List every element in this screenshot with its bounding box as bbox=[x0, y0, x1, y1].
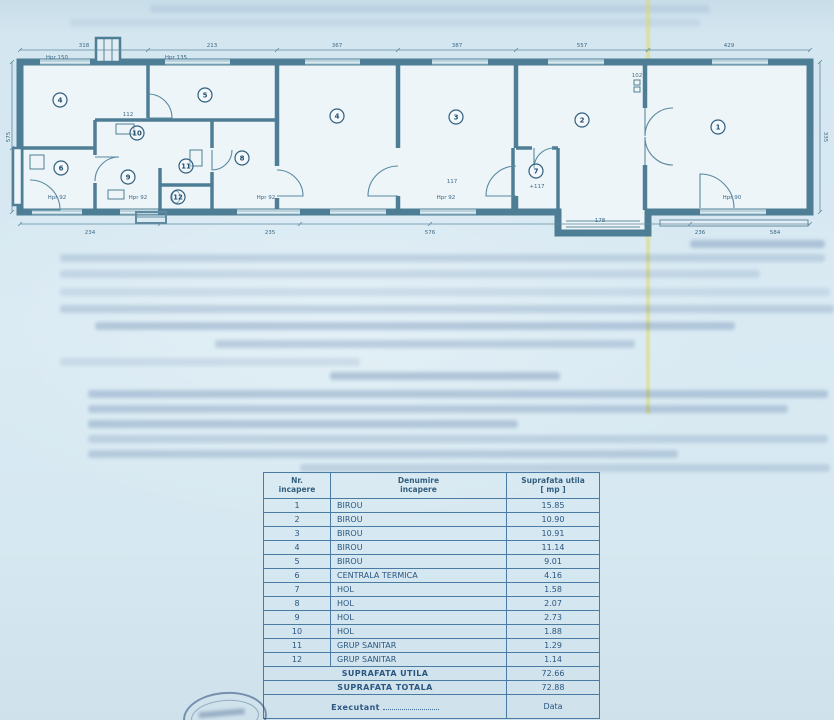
illegible-text-line bbox=[88, 390, 828, 398]
building-outline bbox=[20, 62, 810, 233]
table-row: 9HOL2.73 bbox=[264, 611, 600, 625]
total-row: SUPRAFATA UTILA 72.66 bbox=[264, 667, 600, 681]
plan-annotation: 102 bbox=[632, 73, 643, 79]
room-nr: 4 bbox=[264, 541, 331, 555]
plan-annotation: Hpr 90 bbox=[723, 195, 742, 201]
room-area: 11.14 bbox=[507, 541, 600, 555]
total-row: SUPRAFATA TOTALA 72.88 bbox=[264, 681, 600, 695]
illegible-text-line bbox=[330, 372, 560, 380]
room-area: 15.85 bbox=[507, 499, 600, 513]
table-row: 2BIROU10.90 bbox=[264, 513, 600, 527]
dim-label: 213 bbox=[207, 43, 218, 49]
room-name: BIROU bbox=[331, 499, 507, 513]
plan-annotation: Hpr 150 bbox=[46, 55, 69, 61]
room-name: HOL bbox=[331, 597, 507, 611]
table-row: 8HOL2.07 bbox=[264, 597, 600, 611]
dim-label: 557 bbox=[577, 43, 588, 49]
plan-annotation: +117 bbox=[529, 184, 545, 190]
scanned-document-page: 318 213 367 387 557 429 234 235 576 236 … bbox=[0, 0, 834, 720]
total-value: 72.66 bbox=[507, 667, 600, 681]
executant-cell: Executant bbox=[264, 695, 507, 719]
table-row: 12GRUP SANITAR1.14 bbox=[264, 653, 600, 667]
illegible-text-line bbox=[60, 288, 830, 296]
column-header-name: Denumire incapere bbox=[331, 473, 507, 499]
table-header-row: Nr. incapere Denumire incapere Suprafata… bbox=[264, 473, 600, 499]
table-row: 5BIROU9.01 bbox=[264, 555, 600, 569]
signature-row: Executant Data bbox=[264, 695, 600, 719]
total-label: SUPRAFATA TOTALA bbox=[264, 681, 507, 695]
room-number: 8 bbox=[240, 155, 245, 163]
room-nr: 11 bbox=[264, 639, 331, 653]
room-area: 2.73 bbox=[507, 611, 600, 625]
room-number: 3 bbox=[454, 114, 459, 122]
room-number: 2 bbox=[580, 117, 585, 125]
room-area: 9.01 bbox=[507, 555, 600, 569]
table-row: 10HOL1.88 bbox=[264, 625, 600, 639]
illegible-text-line bbox=[88, 405, 788, 413]
plan-annotation: Hpr 92 bbox=[437, 195, 456, 201]
table-row: 4BIROU11.14 bbox=[264, 541, 600, 555]
room-name: HOL bbox=[331, 583, 507, 597]
room-number: 4 bbox=[58, 97, 63, 105]
room-area: 1.14 bbox=[507, 653, 600, 667]
plan-annotation: Hpr 92 bbox=[129, 195, 148, 201]
room-nr: 7 bbox=[264, 583, 331, 597]
room-number: 4 bbox=[335, 113, 340, 121]
plan-annotation: 117 bbox=[447, 179, 458, 185]
room-nr: 2 bbox=[264, 513, 331, 527]
room-name: BIROU bbox=[331, 555, 507, 569]
room-area: 1.88 bbox=[507, 625, 600, 639]
room-area: 1.29 bbox=[507, 639, 600, 653]
room-number: 1 bbox=[716, 124, 721, 132]
room-name: GRUP SANITAR bbox=[331, 653, 507, 667]
floor-plan-drawing: 318 213 367 387 557 429 234 235 576 236 … bbox=[0, 0, 834, 244]
dim-label: 584 bbox=[770, 230, 781, 236]
illegible-text-line bbox=[60, 270, 760, 278]
illegible-text-line bbox=[88, 435, 828, 443]
dim-label: 318 bbox=[79, 43, 90, 49]
dim-label: 235 bbox=[265, 230, 276, 236]
room-nr: 1 bbox=[264, 499, 331, 513]
illegible-text-line bbox=[95, 322, 735, 330]
table-row: 3BIROU10.91 bbox=[264, 527, 600, 541]
wall-jog bbox=[13, 148, 22, 205]
plan-annotation: Hpr 135 bbox=[165, 55, 188, 61]
room-number: 9 bbox=[126, 174, 131, 182]
table-row: 11GRUP SANITAR1.29 bbox=[264, 639, 600, 653]
dim-label: 387 bbox=[452, 43, 463, 49]
plan-annotation: Hpr 92 bbox=[48, 195, 67, 201]
dim-label: 335 bbox=[822, 132, 828, 143]
illegible-text-line bbox=[215, 340, 635, 348]
room-number: 5 bbox=[203, 92, 208, 100]
illegible-text-line bbox=[690, 240, 825, 248]
room-nr: 10 bbox=[264, 625, 331, 639]
illegible-text-line bbox=[60, 358, 360, 366]
illegible-text-line bbox=[60, 305, 834, 313]
room-area: 2.07 bbox=[507, 597, 600, 611]
table-row: 7HOL1.58 bbox=[264, 583, 600, 597]
dim-label: 367 bbox=[332, 43, 343, 49]
dim-label: 576 bbox=[425, 230, 436, 236]
dim-label: 429 bbox=[724, 43, 735, 49]
total-value: 72.88 bbox=[507, 681, 600, 695]
room-number: 10 bbox=[132, 130, 142, 138]
room-area: 1.58 bbox=[507, 583, 600, 597]
room-nr: 6 bbox=[264, 569, 331, 583]
plan-annotation: 112 bbox=[123, 112, 134, 118]
table-row: 6CENTRALA TERMICA4.16 bbox=[264, 569, 600, 583]
dim-label: 236 bbox=[695, 230, 706, 236]
data-cell: Data bbox=[507, 695, 600, 719]
room-nr: 3 bbox=[264, 527, 331, 541]
total-label: SUPRAFATA UTILA bbox=[264, 667, 507, 681]
illegible-text-line bbox=[88, 450, 678, 458]
room-name: HOL bbox=[331, 611, 507, 625]
round-stamp-fragment bbox=[181, 688, 269, 720]
table-row: 1BIROU15.85 bbox=[264, 499, 600, 513]
dim-label: 575 bbox=[6, 131, 12, 142]
room-area: 10.90 bbox=[507, 513, 600, 527]
plan-annotation: 178 bbox=[595, 218, 606, 224]
room-nr: 8 bbox=[264, 597, 331, 611]
room-number: 7 bbox=[534, 168, 539, 176]
column-header-nr: Nr. incapere bbox=[264, 473, 331, 499]
illegible-text-line bbox=[88, 420, 518, 428]
room-name: HOL bbox=[331, 625, 507, 639]
room-area: 4.16 bbox=[507, 569, 600, 583]
illegible-text-line bbox=[60, 254, 825, 262]
room-name: BIROU bbox=[331, 541, 507, 555]
room-number: 6 bbox=[59, 165, 64, 173]
room-name: CENTRALA TERMICA bbox=[331, 569, 507, 583]
room-nr: 9 bbox=[264, 611, 331, 625]
dim-label: 234 bbox=[85, 230, 96, 236]
room-number: 12 bbox=[173, 194, 183, 202]
room-area: 10.91 bbox=[507, 527, 600, 541]
room-area-table: Nr. incapere Denumire incapere Suprafata… bbox=[263, 472, 600, 719]
room-number: 11 bbox=[181, 163, 191, 171]
room-name: GRUP SANITAR bbox=[331, 639, 507, 653]
illegible-text-line bbox=[300, 464, 830, 472]
executant-label: Executant bbox=[331, 703, 380, 712]
column-header-area: Suprafata utila [ mp ] bbox=[507, 473, 600, 499]
room-name: BIROU bbox=[331, 513, 507, 527]
room-name: BIROU bbox=[331, 527, 507, 541]
room-nr: 5 bbox=[264, 555, 331, 569]
signature-dotted-line bbox=[383, 701, 439, 710]
room-nr: 12 bbox=[264, 653, 331, 667]
plan-annotation: Hpr 92 bbox=[257, 195, 276, 201]
